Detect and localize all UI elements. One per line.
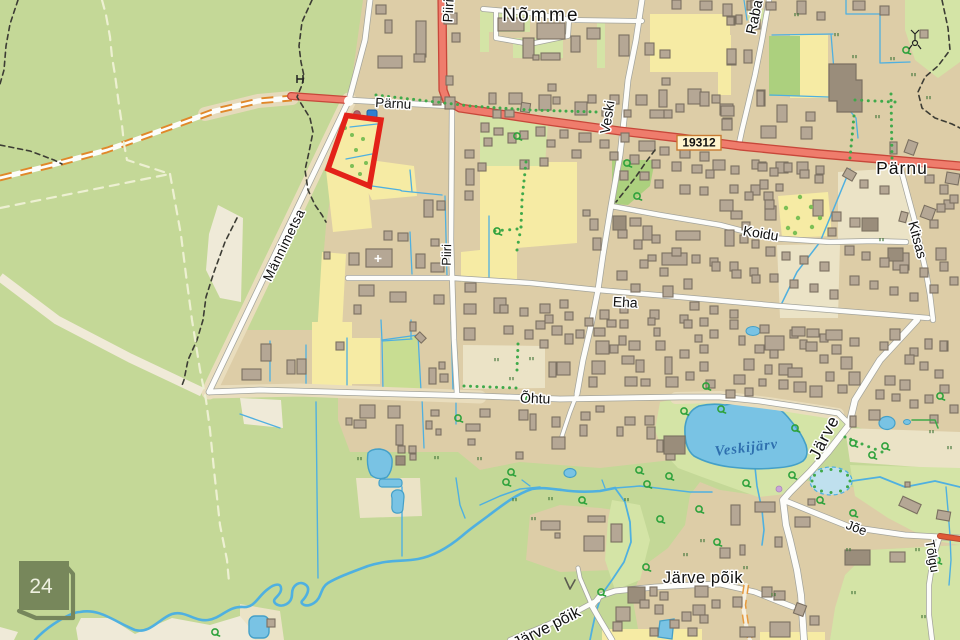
svg-text:Piiri: Piiri — [439, 244, 454, 266]
svg-text:Järve põik: Järve põik — [663, 569, 743, 587]
svg-text:Piiri: Piiri — [439, 0, 456, 23]
svg-text:Pärnu: Pärnu — [876, 158, 928, 178]
svg-text:Nõmme: Nõmme — [502, 5, 580, 26]
svg-text:Eha: Eha — [612, 293, 638, 310]
svg-text:Õhtu: Õhtu — [520, 389, 551, 406]
svg-text:24: 24 — [29, 575, 53, 598]
svg-text:19312: 19312 — [682, 136, 716, 150]
svg-text:Pärnu: Pärnu — [375, 95, 412, 112]
